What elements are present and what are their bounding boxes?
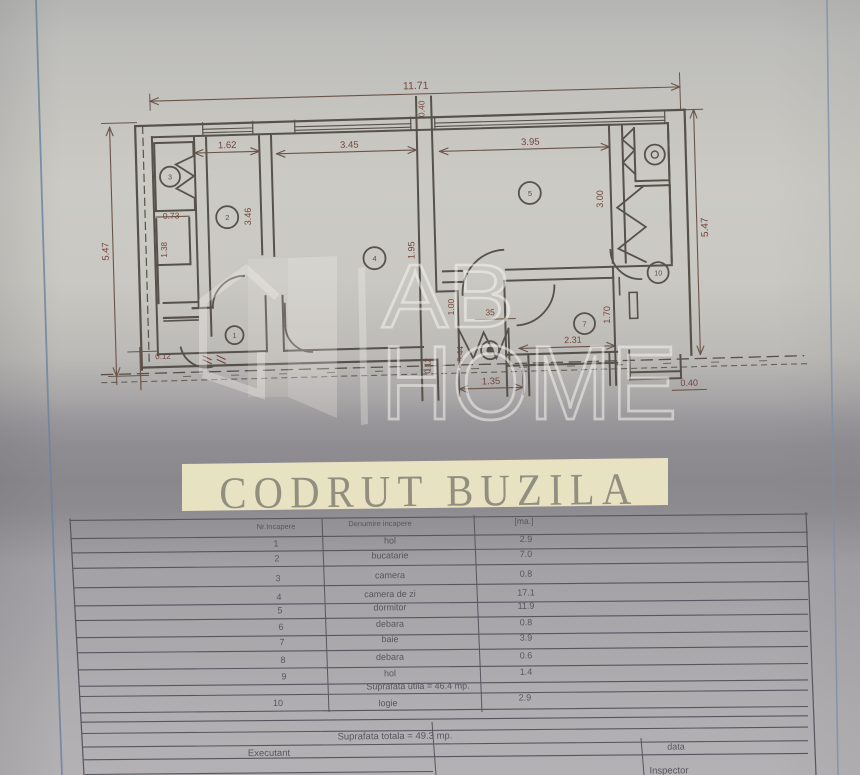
svg-text:0.8: 0.8: [520, 569, 533, 579]
svg-text:3.9: 3.9: [520, 633, 533, 643]
svg-text:CODRUT BUZILA: CODRUT BUZILA: [219, 464, 639, 518]
svg-text:Suprafata totala = 49.3 mp: Suprafata totala = 49.3 mp.: [337, 730, 452, 742]
svg-text:5.47: 5.47: [700, 217, 712, 237]
svg-text:Nr.Incapere: Nr.Incapere: [257, 522, 296, 531]
svg-text:7.0: 7.0: [520, 549, 533, 559]
svg-text:Denumire incapere: Denumire incapere: [348, 519, 411, 529]
svg-text:7: 7: [279, 637, 284, 647]
svg-text:data: data: [667, 741, 685, 751]
svg-text:Suprafata utila = 46.4 mp.: Suprafata utila = 46.4 mp.: [366, 681, 469, 692]
svg-text:4: 4: [373, 254, 377, 263]
svg-text:10: 10: [654, 271, 662, 278]
svg-text:1.70: 1.70: [602, 306, 612, 324]
svg-text:[ma.]: [ma.]: [514, 516, 533, 526]
svg-text:3: 3: [168, 175, 172, 182]
svg-text:1.38: 1.38: [160, 241, 169, 257]
svg-text:Executant: Executant: [248, 748, 291, 759]
svg-text:bucatarie: bucatarie: [371, 550, 408, 560]
svg-text:2.9: 2.9: [520, 534, 533, 544]
svg-text:11.71: 11.71: [403, 80, 429, 93]
svg-text:dormitor: dormitor: [373, 602, 406, 612]
svg-text:hol: hol: [384, 535, 396, 545]
svg-text:1: 1: [273, 538, 278, 548]
svg-text:5: 5: [277, 605, 282, 615]
svg-text:4: 4: [276, 592, 281, 602]
svg-text:3.00: 3.00: [595, 190, 605, 208]
svg-text:0.12: 0.12: [155, 352, 171, 361]
svg-text:0.6: 0.6: [520, 650, 533, 660]
svg-text:6: 6: [278, 622, 283, 632]
svg-text:3.95: 3.95: [521, 137, 540, 148]
svg-text:debara: debara: [376, 652, 404, 662]
svg-text:2: 2: [274, 553, 279, 563]
svg-text:11.9: 11.9: [518, 601, 535, 611]
svg-text:baie: baie: [381, 634, 398, 644]
svg-text:5.47: 5.47: [100, 242, 111, 261]
svg-text:9: 9: [281, 671, 286, 681]
svg-text:camera de zi: camera de zi: [364, 589, 416, 599]
svg-text:5: 5: [528, 189, 532, 198]
svg-text:3.46: 3.46: [243, 208, 253, 226]
svg-text:HOME: HOME: [381, 325, 677, 442]
svg-text:8: 8: [280, 655, 285, 665]
svg-text:3.45: 3.45: [340, 140, 359, 151]
svg-text:2: 2: [225, 213, 229, 222]
svg-text:10: 10: [273, 698, 283, 708]
svg-text:debara: debara: [376, 619, 404, 629]
svg-text:0.40: 0.40: [680, 378, 698, 388]
svg-text:logie: logie: [378, 698, 397, 708]
svg-text:hol: hol: [384, 668, 396, 678]
svg-text:1: 1: [233, 333, 237, 340]
svg-text:camera: camera: [375, 570, 405, 580]
svg-text:1.62: 1.62: [218, 140, 237, 151]
svg-text:0.40: 0.40: [416, 100, 426, 117]
svg-text:1.4: 1.4: [520, 667, 533, 677]
svg-text:0.8: 0.8: [520, 617, 533, 627]
svg-text:3: 3: [275, 573, 280, 583]
svg-text:17.1: 17.1: [517, 587, 535, 597]
svg-text:2.9: 2.9: [519, 692, 532, 702]
svg-text:Inspector: Inspector: [649, 765, 688, 775]
svg-text:0.73: 0.73: [163, 210, 180, 220]
